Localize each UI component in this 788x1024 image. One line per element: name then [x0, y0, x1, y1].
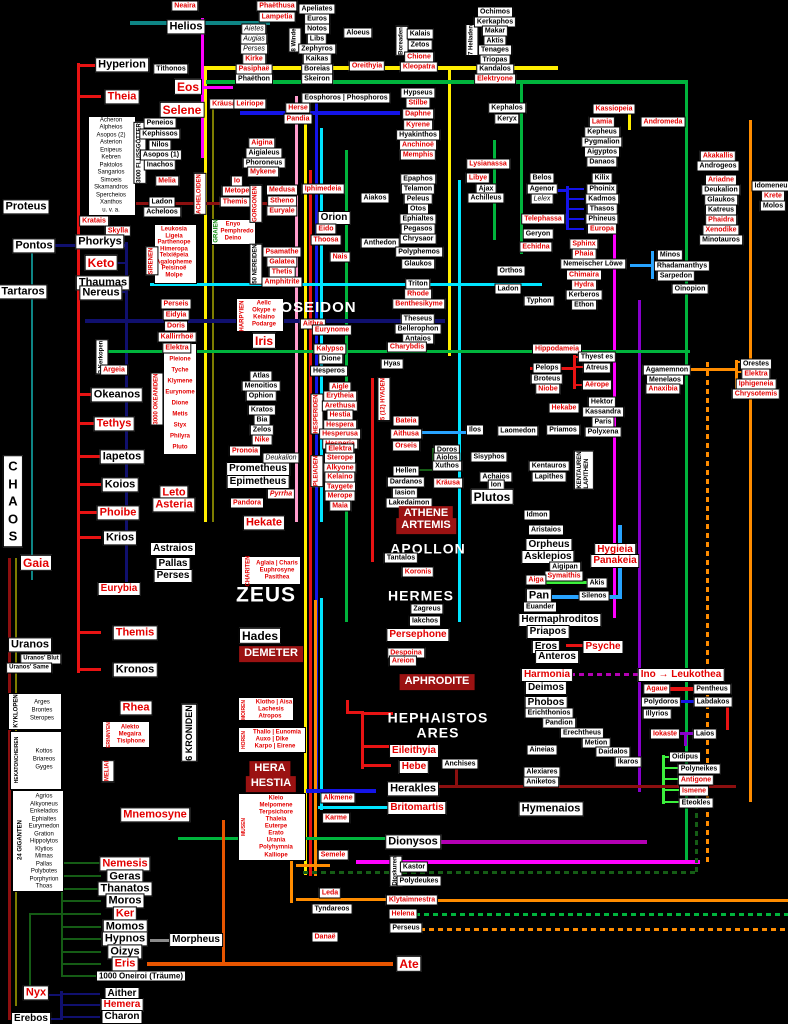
node-danaos: Danaos	[586, 157, 617, 168]
node-megaira: Megaira	[117, 732, 144, 739]
connector-line	[437, 840, 647, 844]
node-europa: Europa	[587, 224, 617, 235]
connector-line	[371, 378, 374, 562]
node-deukalion: Deukalion	[262, 453, 299, 464]
node-aglaia-charis: Aglaia | Charis	[254, 561, 300, 568]
node-hera: HERA	[249, 761, 290, 777]
node-phoibe: Phoibe	[97, 505, 140, 520]
connector-line	[566, 208, 584, 210]
node-hellen: Hellen	[392, 466, 419, 477]
connector-line	[29, 913, 31, 995]
connector-line	[436, 899, 788, 902]
node-charybdis: Charybdis	[387, 342, 427, 353]
node-u-v-a: u. v. a.	[100, 208, 122, 215]
node-priapos: Priapos	[527, 625, 570, 639]
node-demeter: DEMETER	[239, 646, 303, 662]
node-theia: Theia	[105, 89, 140, 104]
node-dione: Dione	[170, 401, 191, 408]
node-anaxibia: Anaxibia	[645, 384, 680, 395]
node-plutos: Plutos	[471, 489, 514, 505]
node-semele: Semele	[318, 850, 349, 861]
node-britomartis: Britomartis	[387, 801, 446, 815]
node-enyo: Enyo	[224, 222, 243, 229]
connector-line	[204, 66, 207, 522]
node-benthesikyme: Benthesikyme	[392, 299, 445, 310]
node-koronis: Koronis	[402, 567, 434, 578]
node-echidna: Echidna	[519, 242, 552, 253]
connector-line	[749, 120, 752, 802]
node-sirenen: SIRENEN	[146, 247, 159, 276]
node-aphrodite: APHRODITE	[400, 674, 475, 690]
connector-line	[77, 483, 101, 486]
node-nereus: Nereus	[79, 285, 122, 300]
node-eileithyia: Eileithyia	[389, 744, 439, 758]
node-perseus: Perseus	[389, 923, 422, 934]
node-deimos: Deimos	[525, 681, 567, 695]
node-pleiaden: PLEIADEN	[311, 455, 324, 487]
node-iapetos: Iapetos	[100, 449, 145, 464]
node-labdakos: Labdakos	[694, 697, 733, 708]
node-sarpedon: Sarpedon	[657, 271, 695, 282]
node-polydeukes: Polydeukes	[397, 876, 442, 887]
node-glaukos: Glaukos	[401, 259, 435, 270]
node-hippodameia: Hippodameia	[532, 344, 582, 355]
node-kalliope: Kalliope	[262, 853, 289, 860]
node-simoeis: Simoeis	[98, 178, 123, 185]
node-epimetheus: Epimetheus	[227, 475, 290, 489]
node-minos: Minos	[657, 250, 683, 261]
node-dione: Dione	[318, 354, 343, 365]
node-kyklopen: KYKLOPEN	[12, 694, 23, 727]
connector-line	[309, 170, 312, 876]
node-aniketos: Aniketos	[523, 777, 559, 788]
node-leukosia: Leukosia	[159, 227, 189, 234]
node-kephissos: Kephissos	[139, 129, 180, 140]
connector-line	[61, 875, 101, 877]
node-hebe: Hebe	[399, 760, 429, 774]
node-euryale: Euryale	[266, 206, 297, 217]
node-asterion: Asterion	[98, 140, 124, 147]
node-pontos: Pontos	[12, 238, 55, 253]
node-symaithis: Symaithis	[544, 571, 583, 582]
node-maia: Maia	[329, 501, 351, 512]
connector-line	[240, 111, 400, 115]
node-daphne: Daphne	[402, 109, 434, 120]
node-bateia: Bateia	[392, 416, 419, 427]
node-hyperion: Hyperion	[95, 57, 149, 72]
node-pronoia: Pronoia	[229, 446, 261, 457]
node-klytios: Klytios	[33, 847, 55, 854]
node-kronos: Kronos	[113, 662, 158, 677]
node-mnemosyne: Mnemosyne	[120, 807, 190, 822]
node-euander: Euander	[523, 602, 557, 613]
node-eurynome: Eurynome	[312, 325, 352, 336]
node-euphrosyne: Euphrosyne	[258, 568, 297, 575]
node-alpheios: Alpheios	[97, 125, 124, 132]
node-paktolos: Paktolos	[97, 163, 124, 170]
node-argeia: Argeia	[100, 365, 128, 376]
connector-line	[77, 668, 101, 671]
node-eurynome: Eurynome	[163, 390, 196, 397]
node-polyxena: Polyxena	[585, 427, 622, 438]
node-laomedon: Laomedon	[497, 426, 538, 437]
node-niobe: Niobe	[535, 384, 560, 395]
node-sisyphos: Sisyphos	[470, 452, 507, 463]
node-hekabe: Hekabe	[549, 403, 580, 414]
node-leda: Leda	[319, 888, 341, 899]
connector-line	[726, 706, 729, 730]
node-5-12-hyaden: 5 (12) HYADEN	[378, 377, 391, 421]
node-hippolytos: Hippolytos	[28, 839, 60, 846]
node-brontes: Brontes	[30, 708, 55, 715]
node-hyas: Hyas	[381, 359, 404, 370]
node-hekate: Hekate	[243, 515, 285, 530]
node-oinopion: Oinopion	[672, 284, 709, 295]
node-ephialtes: Ephialtes	[30, 817, 59, 824]
node-pluto: Pluto	[171, 445, 190, 452]
node-typhon: Typhon	[524, 296, 555, 307]
node-uranos-same: Uranos' Same	[6, 663, 52, 674]
node-deino: Deino	[223, 236, 244, 243]
node-tartaros: Tartaros	[0, 284, 48, 299]
node-kleio: Kleio	[267, 796, 286, 803]
connector-line	[147, 962, 393, 966]
node-eos: Eos	[174, 79, 202, 95]
node-pelops: Pelops	[533, 363, 562, 374]
node-pandora: Pandora	[230, 498, 264, 509]
connector-line	[303, 871, 697, 874]
connector-line	[201, 86, 233, 89]
node-euterpe: Euterpe	[263, 824, 289, 831]
node-moiren: MOIREN	[240, 700, 250, 720]
node-ismene: Ismene	[679, 786, 709, 797]
node-zeus: ZEUS	[234, 583, 298, 606]
node-belos: Belos	[529, 173, 554, 184]
node-chrysotemis: Chrysotemis	[732, 389, 780, 400]
node-iris: Iris	[252, 333, 276, 349]
node-pallas: Pallas	[34, 862, 54, 869]
node-akis: Akis	[587, 578, 608, 589]
node-thyest-es: Thyest es	[578, 352, 616, 363]
node-hades: Hades	[239, 628, 281, 644]
connector-line	[60, 993, 100, 995]
node-neaira: Neaira	[171, 1, 198, 12]
node-thoosa: Thoosa	[311, 235, 342, 246]
node-oreithyia: Oreithyia	[349, 61, 385, 72]
connector-line	[318, 806, 392, 809]
node-philyra: Philyra	[168, 434, 192, 441]
connector-line	[630, 264, 651, 267]
node-klymene: Klymene	[165, 379, 194, 386]
node-agrios: Agrios	[33, 794, 54, 801]
node-idmon: Idmon	[524, 510, 551, 521]
node-thaleia: Thaleia	[264, 817, 289, 824]
connector-line	[304, 98, 307, 875]
node-pyrrha: Pyrrha	[267, 489, 295, 500]
connector-line	[60, 1016, 100, 1018]
node-pasithea: Pasithea	[263, 575, 292, 582]
node-psyche: Psyche	[582, 640, 623, 654]
connector-line	[455, 767, 458, 787]
node-dardanos: Dardanos	[387, 477, 425, 488]
node-prometheus: Prometheus	[226, 462, 290, 476]
node-eurybia: Eurybia	[98, 582, 141, 596]
node-horen: HOREN	[240, 731, 250, 749]
node-kr-usa: Kräusa	[433, 478, 463, 489]
node-asteria: Asteria	[152, 497, 195, 512]
node-aristaios: Aristaios	[528, 525, 564, 536]
node-okeanos: Okeanos	[91, 387, 143, 402]
node-ophion: Ophion	[246, 391, 277, 402]
node-meliai: MELIAI	[102, 760, 115, 782]
node-astraios: Astraios	[150, 542, 196, 556]
node-musen: MUSEN	[240, 818, 250, 836]
node-chrysaor: Chrysaor	[400, 234, 437, 245]
node-harpyien: HARPYIEN	[238, 300, 249, 331]
node-7-heliaden: 7 Heliaden	[466, 24, 479, 56]
node-perseis: Perseis	[161, 299, 192, 310]
node-laios: Laios	[693, 729, 717, 740]
node-aiga: Aiga	[525, 575, 546, 586]
node-polybotes: Polybotes	[29, 869, 59, 876]
connector-line	[212, 100, 214, 522]
node-areion: Areion	[389, 656, 417, 667]
node-medusa: Medusa	[266, 185, 298, 196]
node-metis: Metis	[170, 412, 189, 419]
connector-line	[296, 898, 392, 901]
node-karpo-eirene: Karpo | Eirene	[253, 744, 298, 751]
node-doris: Doris	[164, 321, 188, 332]
node-pandia: Pandia	[284, 114, 313, 125]
node-skeiron: Skeiron	[301, 74, 333, 85]
connector-line	[60, 1004, 100, 1006]
node-1000-oneiroi-tr-ume: 1000 Oneiroi (Träume)	[96, 971, 186, 982]
node-geryon: Geryon	[523, 229, 554, 240]
node-herakles: Herakles	[387, 781, 439, 796]
node-porphyrion: Porphyrion	[27, 877, 60, 884]
node-keto: Keto	[85, 255, 118, 271]
node-nais: Nais	[330, 252, 351, 263]
node-chariten: CHARITEN	[244, 556, 255, 587]
connector-line	[77, 95, 101, 98]
node-kentauren-lapithen: KENTAUREN LAPITHEN	[574, 450, 594, 489]
node-panakeia: Panakeia	[590, 554, 639, 568]
node-agaue: Agaue	[643, 684, 670, 695]
node-tyndareos: Tyndareos	[312, 904, 353, 915]
node-polydoros: Polydoros	[641, 697, 681, 708]
node-dana: Danaë	[311, 932, 338, 943]
node-nemeischer-l-we: Nemeischer Löwe	[560, 259, 626, 270]
node-telephassa: Telephassa	[521, 214, 565, 225]
node-peneios: Peneios	[144, 118, 177, 129]
node-hymenaios: Hymenaios	[519, 801, 584, 816]
node-keryx: Keryx	[494, 114, 519, 125]
connector-line	[61, 862, 101, 864]
connector-line	[346, 711, 361, 714]
node-poseidon: POSEIDON	[267, 300, 358, 317]
connector-line	[61, 938, 101, 940]
connector-line	[77, 631, 101, 634]
node-rhea: Rhea	[120, 700, 153, 715]
node-ilos: Ilos	[466, 425, 484, 436]
node-aineias: Aineias	[527, 745, 558, 756]
node-elektra: Elektra	[162, 343, 191, 354]
node-melia: Melia	[155, 176, 179, 187]
connector-line	[61, 913, 101, 915]
connector-line	[566, 218, 584, 220]
connector-line	[566, 198, 584, 200]
node-orseis: Orseis	[392, 441, 420, 452]
node-tithonos: Tithonos	[153, 64, 188, 75]
node-enipeus: Enipeus	[98, 148, 124, 155]
node-tethys: Tethys	[94, 416, 135, 431]
node-eidyia: Eidyia	[163, 310, 190, 321]
connector-line	[61, 963, 101, 965]
node-libye: Libye	[466, 173, 490, 184]
node-pemphredo: Pemphredo	[218, 229, 255, 236]
connector-line	[150, 283, 542, 286]
connector-line	[361, 745, 391, 748]
node-klytaimnestra: Klytaimnestra	[386, 895, 438, 906]
node-eurymedon: Eurymedon	[27, 824, 62, 831]
node-anthedon: Anthedon	[361, 238, 400, 249]
node-kassiopeia: Kassiopeia	[593, 104, 636, 115]
node-eido: Eido	[315, 224, 336, 235]
node-koios: Koios	[102, 477, 139, 492]
node-zagreus: Zagreus	[410, 604, 443, 615]
node-tyche: Tyche	[170, 368, 191, 375]
node-lachesis: Lachesis	[256, 707, 286, 714]
node-dionysos: Dionysos	[385, 834, 441, 849]
node-pentheus: Pentheus	[693, 684, 731, 695]
node-herse: Herse	[285, 103, 310, 114]
node-aloeus: Aloeus	[343, 28, 372, 39]
connector-line	[61, 926, 101, 928]
node-krios: Krios	[103, 530, 137, 545]
node-kleopatra: Kleopatra	[400, 62, 438, 73]
node-24-giganten: 24 GIGANTEN	[16, 820, 27, 860]
node-xuthos: Xuthos	[432, 461, 462, 472]
connector-line	[361, 711, 364, 769]
connector-line	[570, 673, 642, 676]
node-acheron: Acheron	[98, 118, 124, 125]
connector-line	[566, 228, 584, 230]
node-minotauros: Minotauros	[699, 235, 743, 246]
node-molos: Molos	[760, 201, 786, 212]
node-eteokles: Eteokles	[679, 798, 714, 809]
node-lapithes: Lapithes	[532, 472, 567, 483]
connector-line	[296, 864, 330, 867]
node-a-rope: Aërope	[582, 380, 612, 391]
node-pleione: Pleione	[167, 357, 192, 364]
node-sangarios: Sangarios	[95, 170, 126, 177]
node-achilleus: Achilleus	[467, 193, 504, 204]
node-enkelados: Enkelados	[28, 809, 60, 816]
node-telxi-peia: Telxiëpeia	[158, 253, 191, 260]
node-helena: Helena	[389, 909, 418, 920]
node-selene: Selene	[160, 102, 205, 118]
node-molpe: Molpe	[163, 273, 184, 280]
connector-line	[361, 764, 391, 767]
node-lysianassa: Lysianassa	[466, 159, 510, 170]
node-alkyoneus: Alkyoneus	[28, 802, 60, 809]
node-polyphemos: Polyphemos	[395, 247, 443, 258]
node-harmonia: Harmonia	[521, 668, 573, 682]
node-peisino: Peisinoë	[160, 266, 189, 273]
connector-line	[77, 536, 101, 539]
node-parthenope: Parthenope	[155, 240, 192, 247]
node-hermes: HERMES	[386, 588, 456, 603]
node-memphis: Memphis	[400, 150, 436, 161]
node-mykene: Mykene	[247, 167, 279, 178]
node-ares: ARES	[415, 725, 462, 740]
node-themis: Themis	[220, 197, 251, 208]
node-aithusa: Aithusa	[390, 429, 422, 440]
connector-line	[290, 861, 293, 903]
connector-line	[77, 455, 101, 458]
node-alkmene: Alkmene	[320, 793, 355, 804]
connector-line	[320, 598, 323, 810]
connector-line	[448, 66, 451, 356]
connector-line	[206, 80, 688, 84]
node-persephone: Persephone	[386, 628, 449, 642]
node-steropes: Steropes	[28, 716, 56, 723]
node-eosphoros-phosphoros: Eosphoros | Phosphoros	[301, 93, 390, 104]
node-kottos: Kottos	[33, 749, 54, 756]
node-arges: Arges	[32, 700, 52, 707]
node-melpomene: Melpomene	[257, 803, 294, 810]
node-kilix: Kilix	[592, 173, 613, 184]
node-aiakos: Aiakos	[361, 193, 390, 204]
node-nyx: Nyx	[23, 985, 49, 1000]
node-andromeda: Andromeda	[641, 117, 686, 128]
node-auxo-dike: Auxo | Dike	[254, 737, 291, 744]
node-nike: Nike	[252, 435, 273, 446]
node-hekatoncheiren: HEKATONCHEIREN	[13, 737, 23, 784]
node-lampetia: Lampetia	[259, 12, 296, 23]
node-c-h-a-o-s: C H A O S	[3, 455, 23, 547]
connector-line	[61, 951, 101, 953]
node-priamos: Priamos	[546, 425, 580, 436]
node-kebren: Kebren	[99, 155, 122, 162]
node-hestia: HESTIA	[246, 776, 296, 792]
node-mimas: Mimas	[33, 854, 55, 861]
node-terpsichore: Terpsichore	[257, 810, 295, 817]
node-illyrios: Illyrios	[643, 709, 672, 720]
node-kalais: Kalais	[407, 29, 434, 40]
node-xanthos: Xanthos	[98, 200, 124, 207]
node-styx: Styx	[172, 423, 189, 430]
node-iphimedeia: Iphimedeia	[302, 184, 345, 195]
node-hesperos: Hesperos	[310, 366, 348, 377]
node-silenos: Silenos	[579, 591, 610, 602]
node-proteus: Proteus	[3, 199, 50, 214]
node-urania: Urania	[265, 838, 288, 845]
node-atreus: Atreus	[583, 363, 611, 374]
node-charon: Charon	[102, 1010, 143, 1024]
node-iakchos: Iakchos	[409, 616, 441, 627]
node-skamandros: Skamandros	[92, 185, 130, 192]
connector-line	[684, 734, 687, 746]
connector-line	[638, 300, 641, 792]
node-inachos: Inachos	[144, 160, 176, 171]
node-thallo-eunomia: Thallo | Eunomia	[251, 730, 303, 737]
node-pha-thon: Phaëthon	[235, 74, 273, 85]
node-ate: Ate	[396, 956, 421, 972]
node-podarge: Podarge	[250, 322, 278, 329]
node-leiriope: Leiriope	[233, 99, 266, 110]
node-tantalos: Tantalos	[384, 553, 418, 564]
